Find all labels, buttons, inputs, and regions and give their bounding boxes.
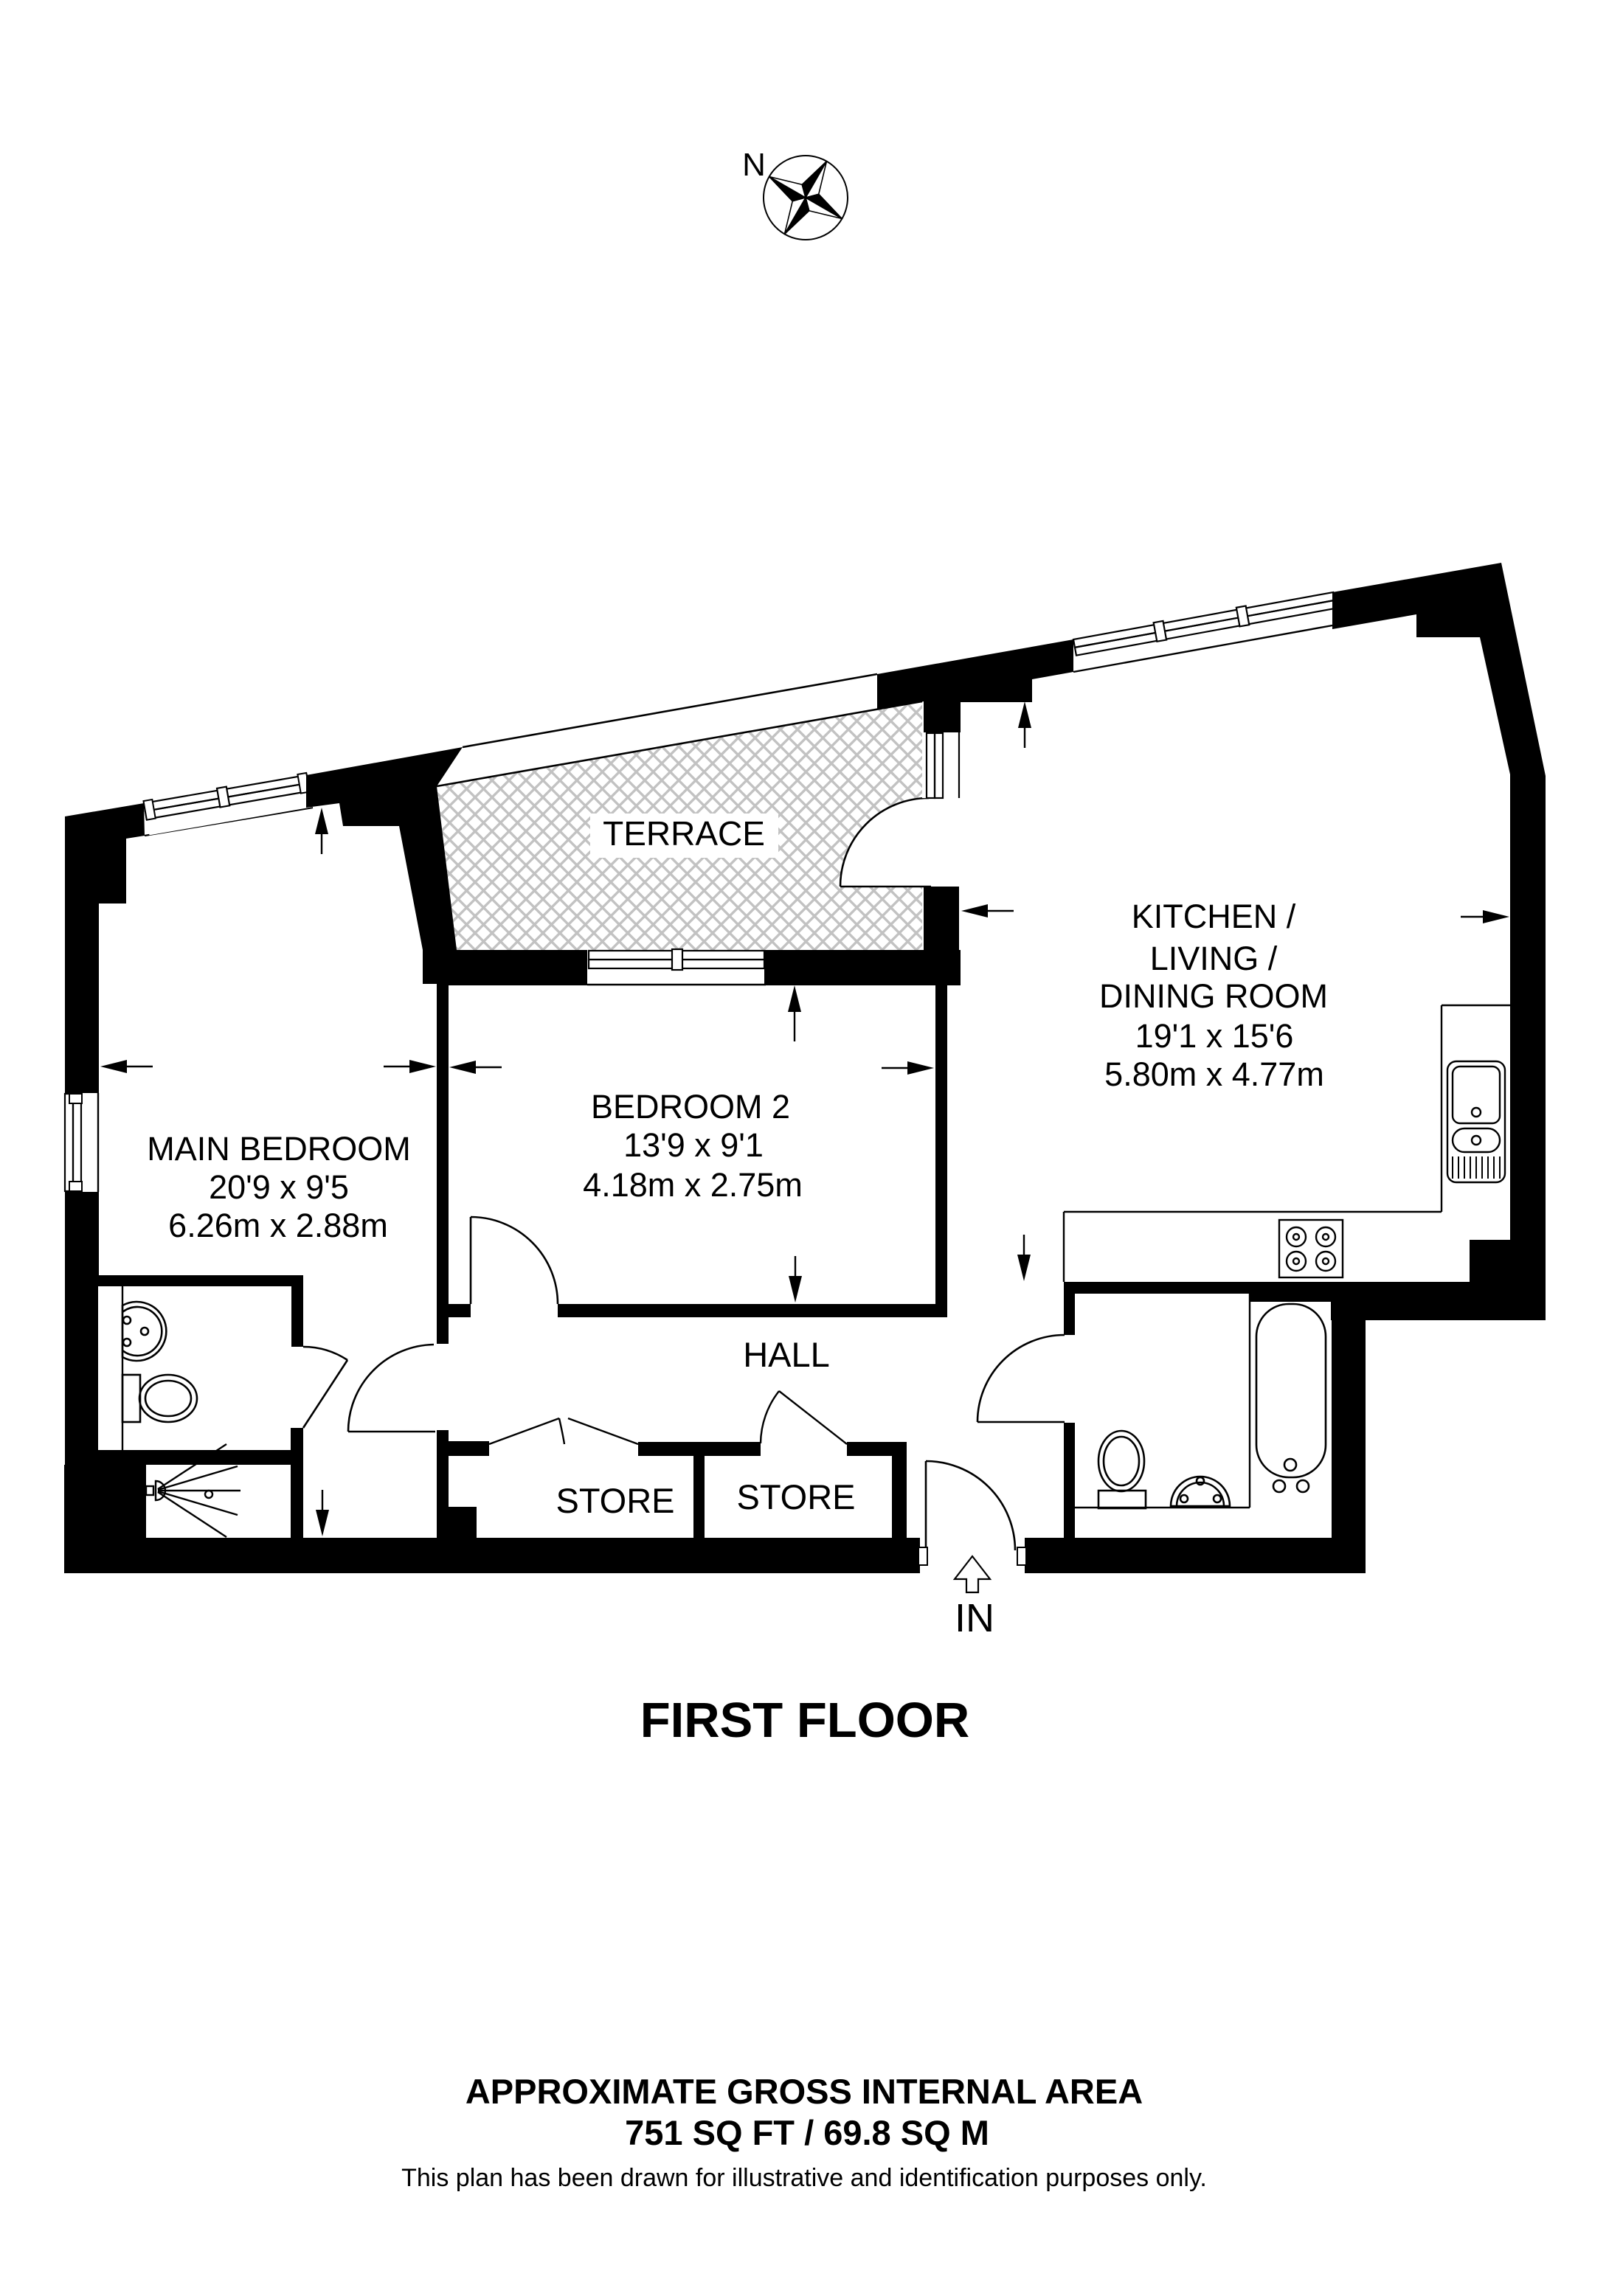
svg-text:MAIN BEDROOM: MAIN BEDROOM bbox=[147, 1130, 411, 1168]
svg-text:IN: IN bbox=[955, 1596, 994, 1640]
svg-text:TERRACE: TERRACE bbox=[603, 814, 765, 853]
svg-text:KITCHEN /: KITCHEN / bbox=[1132, 898, 1296, 935]
svg-text:STORE: STORE bbox=[736, 1477, 855, 1516]
svg-text:20'9 x 9'5: 20'9 x 9'5 bbox=[209, 1168, 349, 1206]
svg-text:LIVING /: LIVING / bbox=[1150, 940, 1278, 977]
svg-text:BEDROOM 2: BEDROOM 2 bbox=[591, 1088, 790, 1126]
svg-text:19'1 x 15'6: 19'1 x 15'6 bbox=[1135, 1017, 1294, 1055]
svg-text:STORE: STORE bbox=[556, 1481, 674, 1520]
svg-text:13'9 x 9'1: 13'9 x 9'1 bbox=[623, 1126, 764, 1164]
svg-text:4.18m x 2.75m: 4.18m x 2.75m bbox=[583, 1166, 803, 1204]
svg-text:751 SQ FT / 69.8 SQ M: 751 SQ FT / 69.8 SQ M bbox=[625, 2113, 989, 2152]
svg-text:6.26m x 2.88m: 6.26m x 2.88m bbox=[168, 1207, 388, 1244]
svg-text:APPROXIMATE GROSS INTERNAL ARE: APPROXIMATE GROSS INTERNAL AREA bbox=[466, 2072, 1143, 2111]
svg-text:This plan has been drawn for i: This plan has been drawn for illustrativ… bbox=[401, 2164, 1207, 2192]
svg-text:5.80m x 4.77m: 5.80m x 4.77m bbox=[1104, 1055, 1324, 1093]
svg-text:FIRST FLOOR: FIRST FLOOR bbox=[640, 1693, 970, 1748]
svg-text:N: N bbox=[742, 147, 766, 183]
svg-text:HALL: HALL bbox=[743, 1335, 830, 1374]
svg-text:DINING ROOM: DINING ROOM bbox=[1099, 977, 1328, 1015]
